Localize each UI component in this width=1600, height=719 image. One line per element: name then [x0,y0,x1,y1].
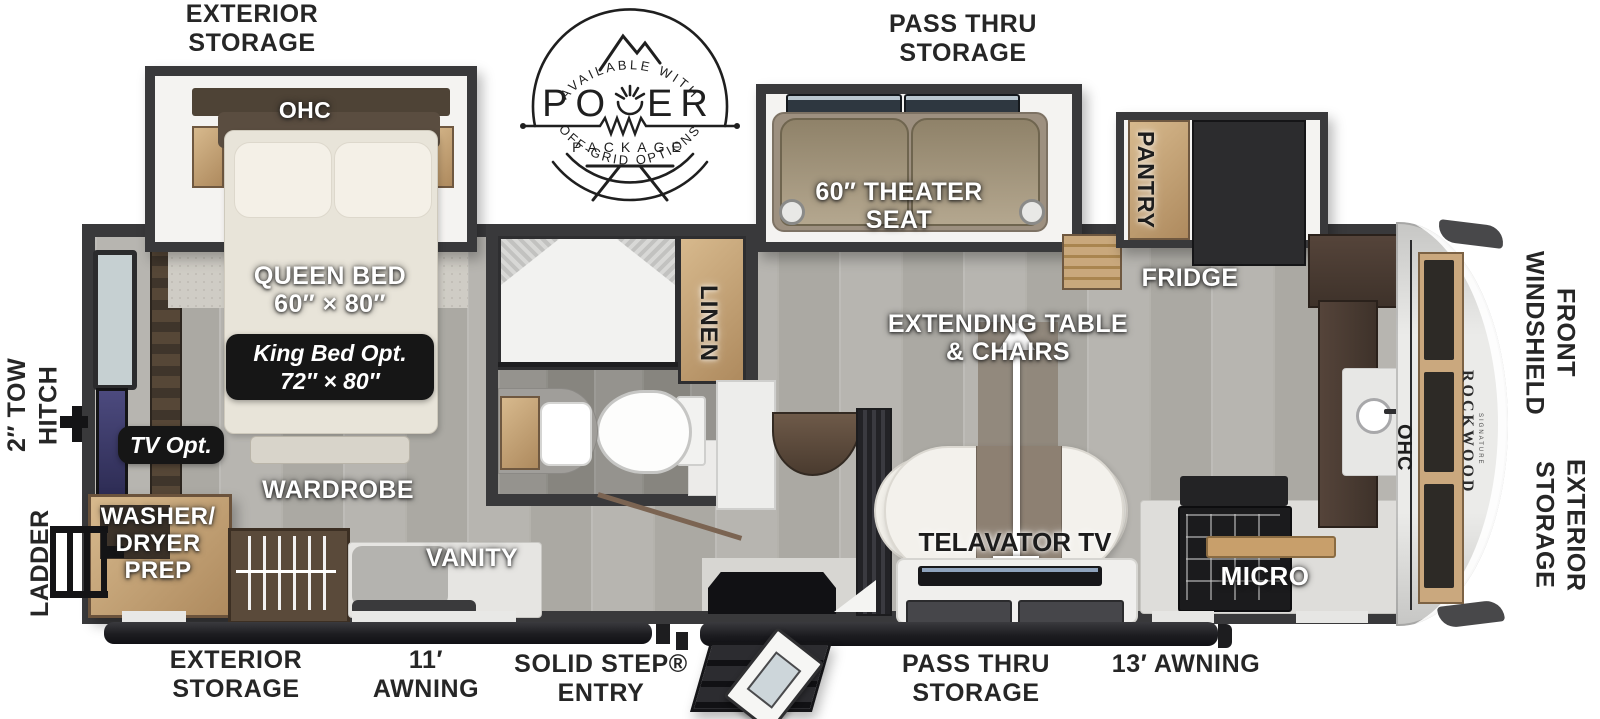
awning-bracket-mid-2 [676,632,688,650]
label-awning-11: 11′ AWNING [350,646,502,704]
cutting-board [1206,536,1336,558]
label-line: STORAGE [860,679,1092,708]
label-line: DRYER [86,531,230,558]
label-line: PASS THRU [830,10,1096,39]
label-line: AWNING [350,675,502,704]
sun-smile [618,102,642,114]
label-line: 11′ [350,646,502,675]
label-line: FRIDGE [1142,264,1239,292]
table-icon-leg-1 [593,166,620,200]
resistor-dot-right [734,123,740,129]
brand-wordmark: ROCKWOOD [1459,370,1476,494]
label-line: 2″ TOW [2,318,33,492]
label-vanity: VANITY [408,544,536,572]
front-ohc-panel-3 [1424,484,1454,588]
label-line: WARDROBE [262,476,414,504]
label-extending-table: EXTENDING TABLE & CHAIRS [870,310,1146,366]
label-pass-thru-bottom: PASS THRU STORAGE [860,650,1092,708]
shower-glass-door [498,362,678,367]
bed-pillow-left [234,142,332,218]
wardrobe-rod [236,570,336,573]
label-line: HITCH [33,318,64,492]
bed-pillow-right [334,142,432,218]
kitchen-sink [1356,398,1392,434]
brand-rockwood-sub: SIGNATURE [1477,404,1483,474]
label-front-windshield: FRONT WINDSHIELD [1518,226,1581,440]
brand-sub-wordmark: SIGNATURE [1477,413,1483,466]
label-wardrobe: WARDROBE [248,476,428,504]
fridge [1192,120,1306,266]
label-theater-seat: 60″ THEATER SEAT [786,178,1012,234]
label-line: STORAGE [1528,440,1559,610]
label-line: LINEN [695,285,722,362]
label-line: PREP [86,558,230,585]
sun-ray-5 [616,94,624,99]
label-line: PANTRY [1133,131,1159,229]
label-awning-13: 13′ AWNING [1080,650,1292,679]
awning-bracket-mid-1 [656,624,670,644]
label-micro: MICRO [1200,562,1330,591]
badge-tv-opt: TV Opt. [118,426,224,464]
label-line: SEAT [786,206,1012,234]
label-line: EXTERIOR [1559,440,1590,610]
badge-king-bed-opt: King Bed Opt. 72″ × 80″ [226,334,434,400]
label-queen-bed: QUEEN BED 60″ × 80″ [200,262,460,318]
label-line: EXTERIOR [120,0,384,29]
awning-rail-11ft [104,622,652,644]
pantry-wall-counter [1062,234,1122,290]
label-linen: LINEN [694,258,722,388]
label-line: TELAVATOR TV [918,527,1111,557]
label-line: WINDSHIELD [1518,226,1549,440]
label-line: 60″ × 80″ [200,290,460,318]
table-icon-leg-2 [640,166,667,200]
logo-power-left: PO [542,83,613,125]
label-telavator-tv: TELAVATOR TV [888,528,1142,557]
label-line: STORAGE [120,29,384,58]
label-line: WASHER/ [86,504,230,531]
bath-sink-basin [540,402,592,466]
awning-bracket-right [1218,624,1232,648]
label-line: FRONT [1549,226,1580,440]
toilet-bowl [596,390,692,474]
label-exterior-storage-right: EXTERIOR STORAGE [1528,440,1591,610]
power-package-logo: AVAILABLE WITH PO ER PACKAGE OFF-GRID OP… [505,0,755,216]
sun-ray-2 [634,88,639,96]
bath-sink-shelf [500,396,540,470]
label-pantry: PANTRY [1132,124,1159,236]
label-line: LADDER [26,509,54,617]
bottom-window-kitchen-2 [1296,611,1368,623]
label-exterior-storage-top-left: EXTERIOR STORAGE [120,0,384,58]
floorplan-canvas: AVAILABLE WITH PO ER PACKAGE OFF-GRID OP… [0,0,1600,719]
label-line: QUEEN BED [200,262,460,290]
label-line: OHC [1393,424,1415,471]
front-ohc-panel-1 [1424,260,1454,360]
label-ohc-front: OHC [1392,404,1415,492]
bed-foot-bench [250,436,410,464]
label-washer-dryer: WASHER/ DRYER PREP [86,504,230,585]
label-exterior-storage-bottom: EXTERIOR STORAGE [130,646,342,704]
sun-ray-1 [636,94,644,99]
label-solid-step-entry: SOLID STEP® ENTRY [495,650,707,708]
label-ohc-bedroom: OHC [260,98,350,124]
label-ladder: LADDER [26,492,55,634]
label-line: & CHAIRS [870,338,1146,366]
label-line: 13′ AWNING [1112,650,1261,678]
range-hood [1180,476,1288,506]
front-ohc-panel-2 [1424,372,1454,472]
label-line: EXTERIOR [130,646,342,675]
brand-rockwood: ROCKWOOD [1458,336,1476,528]
label-tow-hitch: 2″ TOW HITCH [2,318,65,492]
label-line: SOLID STEP® [495,650,707,679]
cupholder-right [1019,199,1045,225]
wardrobe-hangers [236,536,336,610]
logo-power-right: ER [647,83,716,125]
label-line: TV Opt. [130,432,212,458]
label-line: EXTENDING TABLE [870,310,1146,338]
label-line: STORAGE [830,39,1096,68]
tv-lift-screen-edge [922,568,1098,572]
kitchen-counter-top-strip [1308,234,1408,308]
label-line: ENTRY [495,679,707,708]
label-line: 72″ × 80″ [238,367,422,395]
label-line: King Bed Opt. [238,339,422,367]
label-line: STORAGE [130,675,342,704]
label-line: VANITY [426,544,518,572]
sun-ray-4 [622,88,627,96]
resistor-dot-left [520,123,526,129]
label-line: OHC [279,97,331,123]
exterior-griddle [708,572,836,614]
label-line: 60″ THEATER [786,178,1012,206]
label-fridge: FRIDGE [1130,264,1250,292]
entry-half-wall [716,380,776,510]
label-pass-thru-top: PASS THRU STORAGE [830,10,1096,68]
rear-window [93,250,137,390]
label-line: MICRO [1221,561,1310,591]
label-line: PASS THRU [860,650,1092,679]
